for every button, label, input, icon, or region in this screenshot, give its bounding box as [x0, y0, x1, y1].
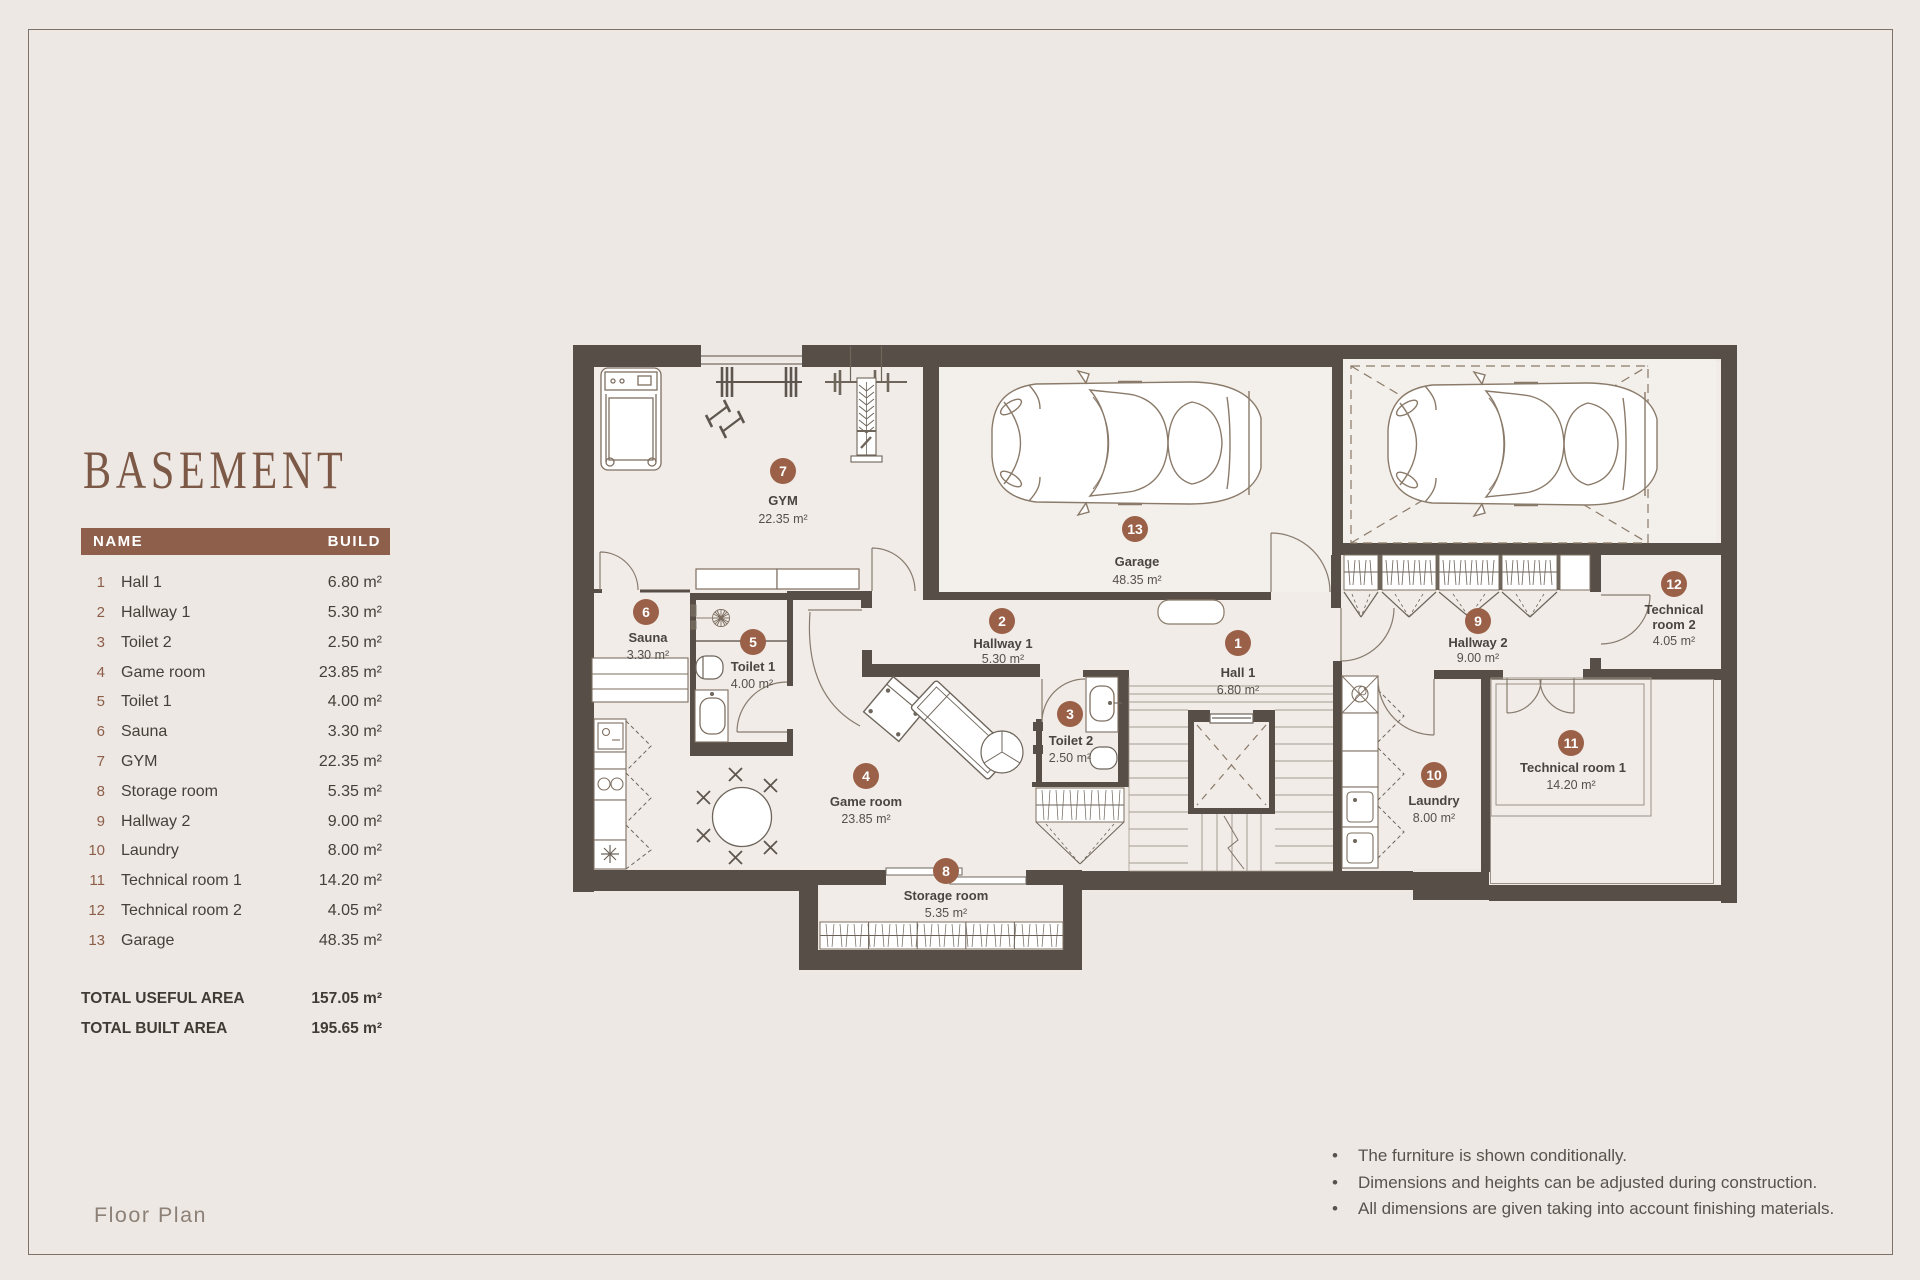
svg-text:6: 6	[642, 604, 650, 620]
svg-text:Hallway 2: Hallway 2	[1448, 635, 1507, 650]
svg-text:Storage room: Storage room	[904, 888, 989, 903]
svg-text:48.35 m²: 48.35 m²	[1112, 573, 1161, 587]
svg-text:2: 2	[998, 613, 1006, 629]
svg-text:9.00 m²: 9.00 m²	[1457, 651, 1499, 665]
svg-text:Garage: Garage	[1115, 554, 1160, 569]
svg-text:5.35 m²: 5.35 m²	[925, 906, 967, 920]
svg-text:11: 11	[1564, 735, 1579, 751]
svg-text:Sauna: Sauna	[628, 630, 668, 645]
svg-text:13: 13	[1127, 521, 1143, 537]
svg-text:4.05 m²: 4.05 m²	[1653, 634, 1695, 648]
svg-text:12: 12	[1666, 576, 1682, 592]
svg-text:9: 9	[1474, 613, 1482, 629]
svg-text:4.00 m²: 4.00 m²	[731, 677, 773, 691]
svg-text:10: 10	[1426, 767, 1442, 783]
svg-text:Hallway 1: Hallway 1	[973, 636, 1032, 651]
svg-text:7: 7	[779, 463, 787, 479]
svg-text:3.30 m²: 3.30 m²	[627, 648, 669, 662]
svg-text:14.20 m²: 14.20 m²	[1546, 778, 1595, 792]
svg-text:23.85 m²: 23.85 m²	[841, 812, 890, 826]
svg-text:5.30 m²: 5.30 m²	[982, 652, 1024, 666]
svg-text:2.50 m²: 2.50 m²	[1049, 751, 1091, 765]
svg-text:1: 1	[1234, 635, 1242, 651]
svg-text:8: 8	[942, 863, 950, 879]
svg-text:Technical room 1: Technical room 1	[1520, 760, 1626, 775]
svg-text:4: 4	[862, 768, 870, 784]
svg-text:8.00 m²: 8.00 m²	[1413, 811, 1455, 825]
svg-text:Laundry: Laundry	[1408, 793, 1460, 808]
svg-text:6.80 m²: 6.80 m²	[1217, 683, 1259, 697]
svg-text:Hall 1: Hall 1	[1221, 665, 1256, 680]
svg-text:Toilet 2: Toilet 2	[1049, 733, 1094, 748]
svg-text:Technical: Technical	[1644, 602, 1703, 617]
svg-text:room 2: room 2	[1652, 617, 1695, 632]
svg-text:GYM: GYM	[768, 493, 798, 508]
svg-text:22.35 m²: 22.35 m²	[758, 512, 807, 526]
svg-text:Toilet 1: Toilet 1	[731, 659, 776, 674]
svg-text:Game room: Game room	[830, 794, 902, 809]
svg-text:5: 5	[749, 634, 757, 650]
svg-text:3: 3	[1066, 706, 1074, 722]
